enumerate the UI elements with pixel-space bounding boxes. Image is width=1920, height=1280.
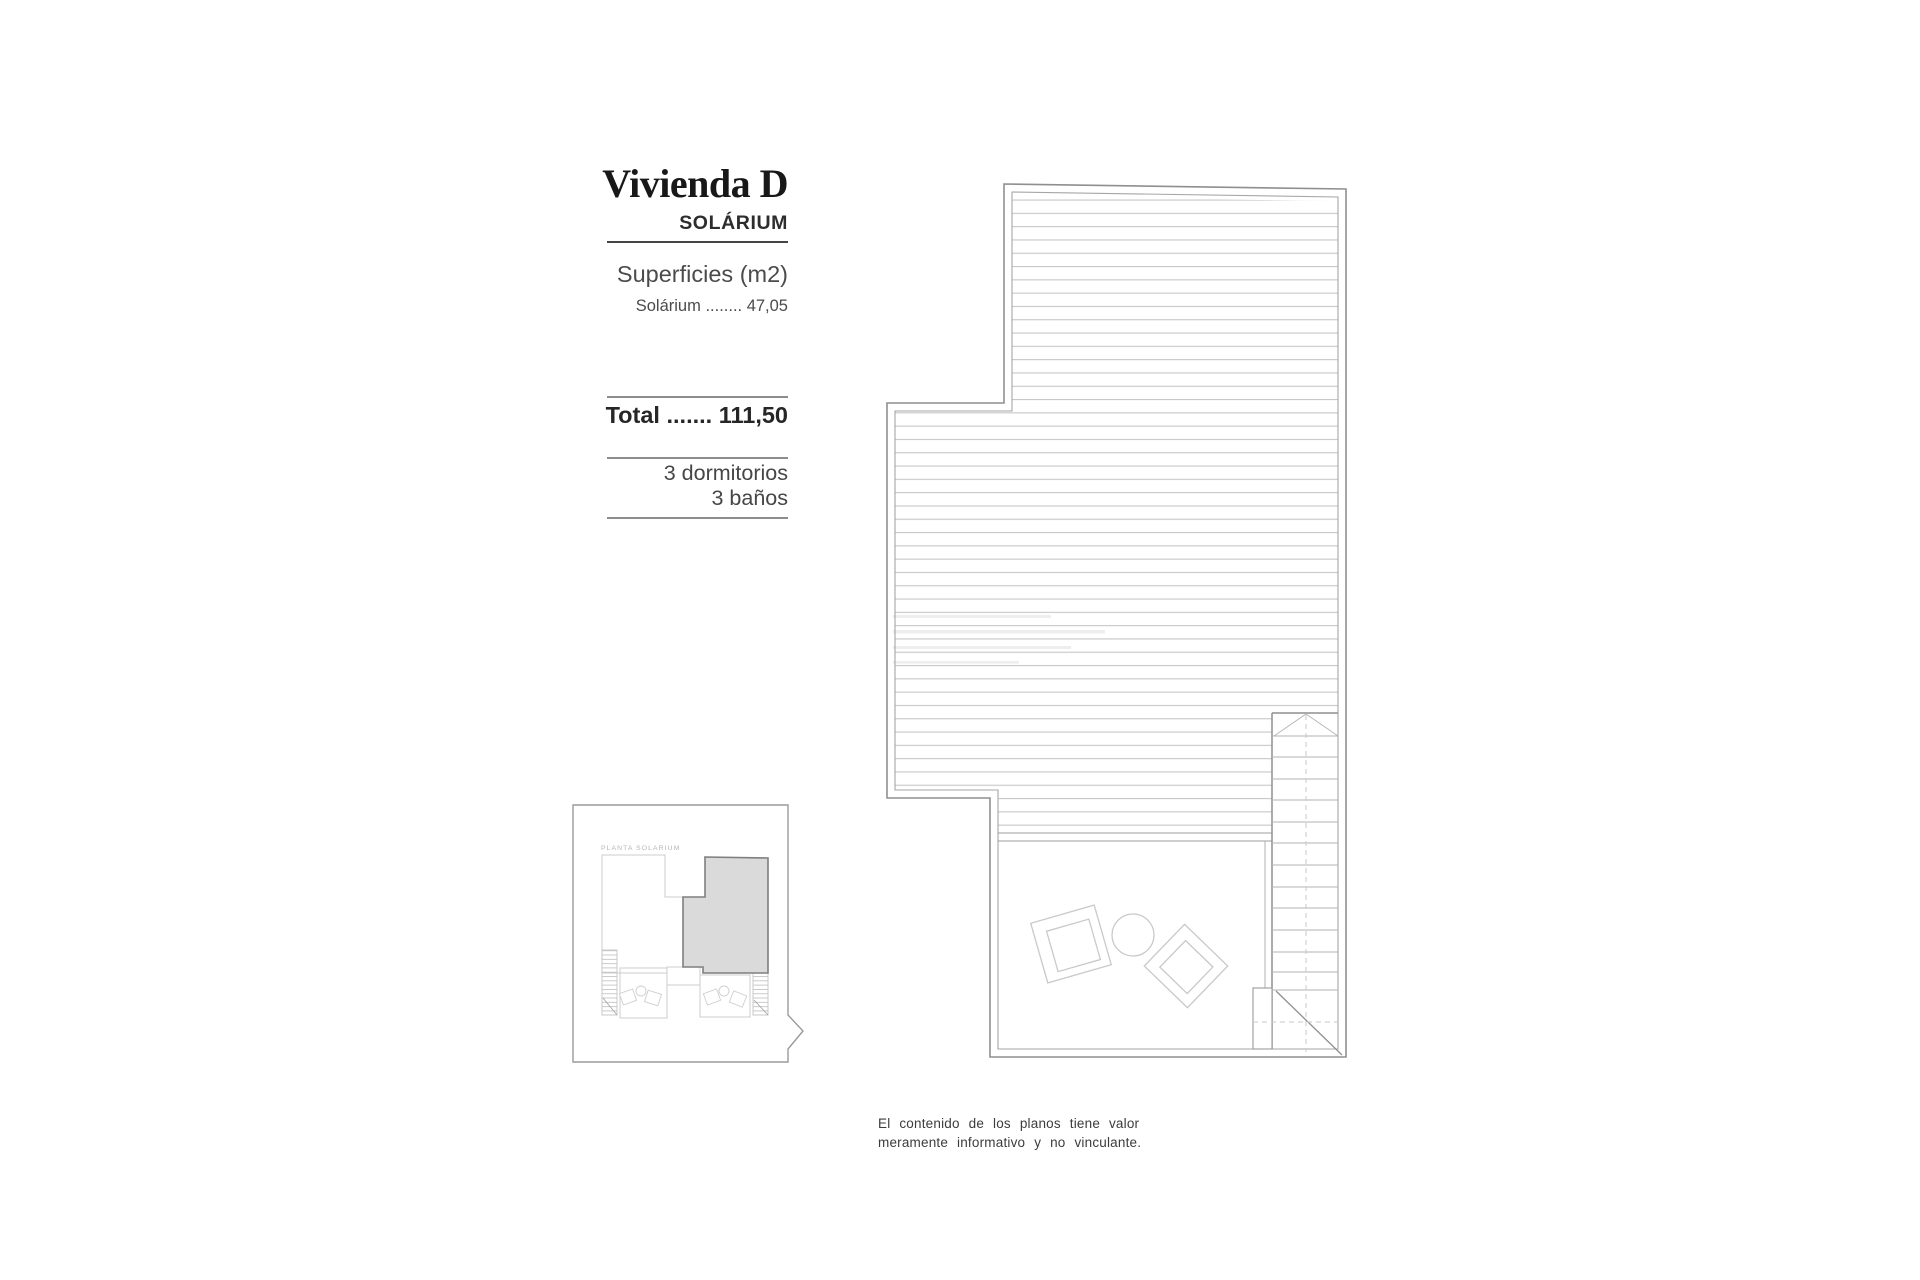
deck-terrace-partition xyxy=(998,833,1272,841)
main-floor-plan xyxy=(887,184,1346,1057)
terrace xyxy=(1031,905,1228,1008)
round-table xyxy=(1112,914,1154,956)
stair-landing-box xyxy=(1253,988,1272,1049)
key-plan: PLANTA SOLARIUM xyxy=(573,805,803,1062)
armchair-left xyxy=(1031,905,1112,983)
floor-plan-sheet: Vivienda D SOLÁRIUM Superficies (m2) Sol… xyxy=(0,0,1920,1280)
plan-canvas: PLANTA SOLARIUM xyxy=(0,0,1920,1280)
stair-treads xyxy=(1272,736,1338,990)
key-plan-label: PLANTA SOLARIUM xyxy=(601,845,680,852)
stair-break-line xyxy=(1276,991,1342,1055)
armchair-right xyxy=(1144,924,1227,1007)
